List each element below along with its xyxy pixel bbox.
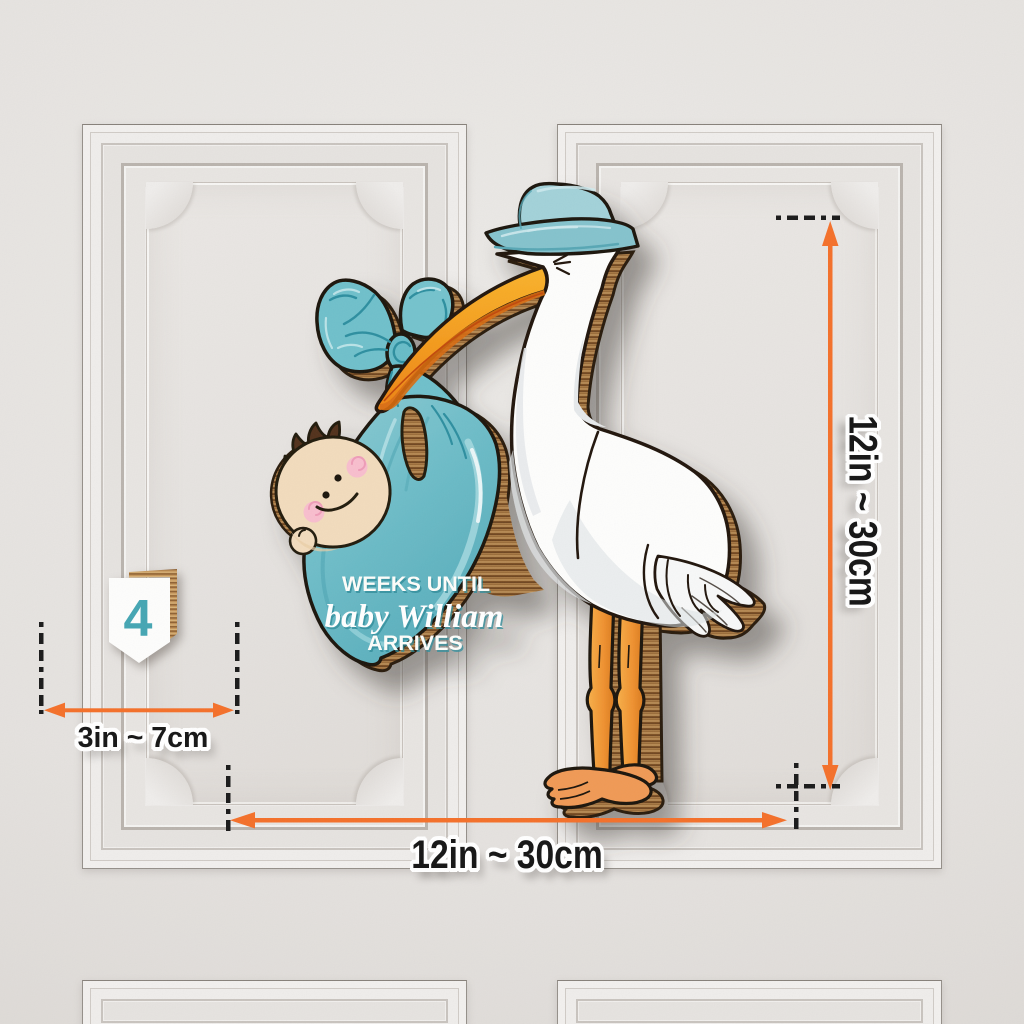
svg-text:4: 4 [124,590,153,648]
